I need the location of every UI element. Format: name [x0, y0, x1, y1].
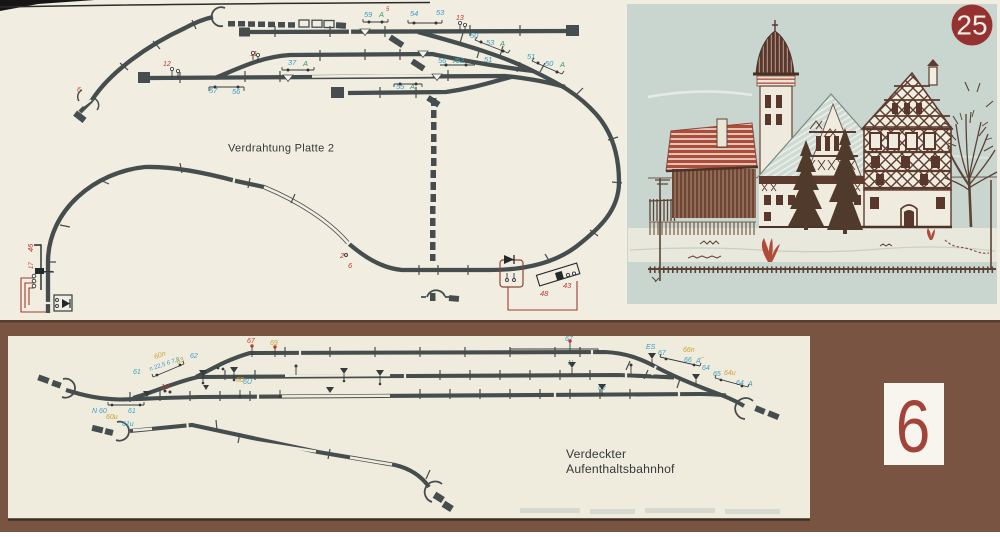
svg-text:43: 43: [563, 281, 572, 290]
svg-text:56: 56: [232, 87, 241, 96]
svg-text:48: 48: [540, 289, 549, 298]
svg-text:Aufenthaltsbahnhof: Aufenthaltsbahnhof: [566, 462, 675, 476]
svg-text:37: 37: [288, 58, 297, 67]
svg-text:67: 67: [247, 338, 256, 345]
svg-text:61: 61: [128, 408, 136, 415]
svg-text:53: 53: [436, 8, 445, 17]
svg-text:Verdeckter: Verdeckter: [566, 447, 626, 461]
svg-text:46: 46: [26, 243, 35, 252]
svg-text:54: 54: [410, 9, 418, 18]
svg-text:A: A: [452, 56, 458, 65]
svg-text:A: A: [499, 39, 505, 48]
svg-text:6: 6: [77, 87, 81, 94]
svg-text:64u: 64u: [724, 370, 736, 377]
svg-text:51: 51: [484, 55, 492, 64]
svg-text:A: A: [302, 59, 308, 68]
svg-text:67: 67: [658, 350, 667, 357]
svg-text:A: A: [695, 358, 701, 365]
svg-text:61u: 61u: [122, 421, 134, 428]
svg-text:65: 65: [713, 371, 721, 378]
svg-text:A: A: [559, 60, 565, 69]
svg-text:A: A: [409, 82, 415, 91]
svg-text:50: 50: [545, 59, 554, 68]
svg-text:17: 17: [29, 262, 35, 269]
svg-text:59: 59: [364, 10, 373, 19]
svg-text:64: 64: [702, 365, 710, 372]
svg-text:Verdrahtung Platte 2: Verdrahtung Platte 2: [228, 143, 334, 155]
svg-text:13: 13: [456, 15, 464, 22]
svg-text:62: 62: [190, 353, 198, 360]
svg-text:ES: ES: [646, 344, 656, 351]
svg-text:N 60: N 60: [92, 408, 107, 415]
svg-text:53: 53: [486, 38, 495, 47]
svg-text:6U: 6U: [243, 379, 253, 386]
svg-text:12: 12: [163, 61, 171, 68]
svg-text:66n: 66n: [683, 347, 695, 354]
svg-text:51: 51: [527, 52, 535, 61]
svg-text:60u: 60u: [106, 414, 118, 421]
svg-text:50: 50: [470, 31, 479, 40]
svg-text:6: 6: [896, 386, 931, 468]
svg-text:2: 2: [339, 251, 345, 260]
svg-text:25: 25: [956, 10, 987, 41]
svg-text:61: 61: [133, 369, 141, 376]
svg-text:A: A: [378, 10, 384, 19]
